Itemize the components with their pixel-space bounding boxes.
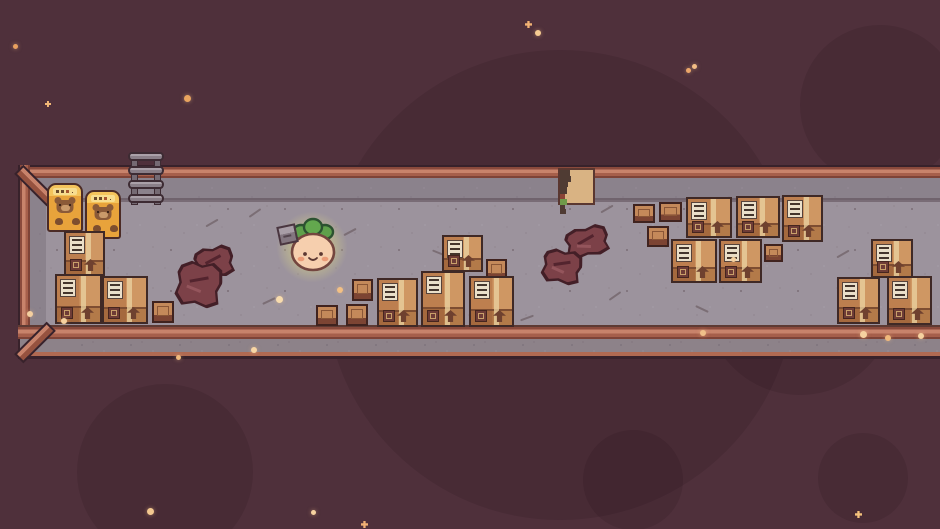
cardboard-box[interactable] [442, 235, 483, 272]
supply-crate[interactable] [316, 305, 338, 326]
bottom-wall-band [20, 339, 940, 352]
shipping-label [741, 201, 757, 219]
bear-eyes-icon [97, 211, 99, 213]
sparkle [700, 330, 706, 336]
shipping-label [892, 281, 908, 299]
cardboard-box[interactable] [719, 239, 762, 283]
shadow-blob [818, 433, 908, 523]
bottom-wall-edge [18, 352, 940, 359]
sparkle [61, 318, 67, 324]
shipping-label [676, 244, 692, 262]
vending-machine-label [91, 195, 115, 202]
ladder[interactable] [128, 152, 164, 208]
shipping-label [876, 244, 892, 262]
vending-machine-label [53, 188, 77, 195]
ladder-rung [128, 152, 164, 161]
sparkle [13, 44, 18, 49]
cardboard-box[interactable] [887, 276, 932, 325]
sparkle [918, 333, 924, 339]
shipping-label [842, 282, 858, 300]
wall-sign[interactable] [558, 168, 595, 205]
sparkle [176, 355, 181, 360]
crushed-box-scuff [576, 245, 590, 248]
sign-glyph [560, 209, 566, 214]
turnip-character-sprite [277, 212, 349, 284]
shipping-label [60, 279, 76, 297]
fragile-stamp-icon [108, 307, 120, 319]
fragile-stamp-icon [70, 259, 82, 271]
fragile-stamp-icon [692, 221, 704, 233]
shadow-blob [800, 25, 940, 185]
fragile-stamp-icon [677, 266, 689, 278]
sign-glyph [560, 187, 567, 194]
sparkle [860, 331, 867, 338]
bear-eyes-icon [59, 204, 61, 206]
shipping-label [474, 281, 490, 299]
supply-crate[interactable] [764, 244, 783, 262]
cardboard-box[interactable] [102, 276, 148, 324]
cardboard-box[interactable] [55, 274, 102, 324]
crushed-box[interactable] [173, 258, 225, 310]
cardboard-box[interactable] [686, 197, 732, 238]
shipping-label [382, 283, 398, 301]
cardboard-box[interactable] [64, 231, 105, 276]
cardboard-box[interactable] [671, 239, 717, 283]
supply-crate[interactable] [346, 304, 368, 326]
supply-crate[interactable] [352, 279, 373, 301]
sparkle [337, 287, 343, 293]
sparkle [885, 335, 891, 341]
fragile-stamp-icon [788, 225, 800, 237]
sparkle [27, 311, 33, 317]
cardboard-box[interactable] [837, 277, 880, 324]
fragile-stamp-icon [877, 261, 889, 273]
supply-crate[interactable] [152, 301, 174, 323]
bear-face-icon [95, 207, 112, 220]
sparkle [692, 64, 697, 69]
cardboard-box[interactable] [377, 278, 418, 327]
fragile-stamp-icon [448, 255, 460, 267]
bear-paws-icon [55, 218, 63, 225]
sparkle [276, 296, 283, 303]
player-character[interactable] [277, 212, 349, 284]
fragile-stamp-icon [475, 310, 487, 322]
cardboard-box[interactable] [871, 239, 913, 278]
game-viewport[interactable] [0, 0, 940, 529]
carried-parcel [276, 223, 299, 246]
fragile-stamp-icon [742, 221, 754, 233]
crushed-box-fill [176, 261, 221, 306]
sparkle [525, 21, 532, 28]
supply-crate[interactable] [659, 202, 682, 222]
shipping-label [107, 281, 123, 299]
fragile-stamp-icon [427, 310, 439, 322]
sparkle [731, 257, 736, 262]
ladder-rung [128, 194, 164, 203]
sparkle [147, 508, 154, 515]
vending-machine[interactable] [47, 183, 83, 232]
crushed-box[interactable] [539, 246, 584, 287]
fragile-stamp-icon [843, 307, 855, 319]
supply-crate[interactable] [647, 226, 669, 247]
sparkle [311, 510, 316, 515]
bottom-wall-trim [18, 325, 940, 339]
fragile-stamp-icon [725, 266, 737, 278]
ladder-rung [128, 180, 164, 189]
ladder-rung [128, 166, 164, 175]
cardboard-box[interactable] [469, 276, 514, 327]
shipping-label [69, 236, 85, 254]
sparkle [45, 101, 51, 107]
cardboard-box[interactable] [782, 195, 823, 242]
supply-crate[interactable] [633, 204, 655, 223]
box-tape-stripe [81, 276, 86, 322]
fragile-stamp-icon [383, 310, 395, 322]
shadow-blob [77, 384, 253, 529]
sparkle [686, 68, 691, 73]
sparkle [251, 347, 257, 353]
cardboard-box[interactable] [421, 271, 465, 327]
sparkle [361, 521, 368, 528]
shipping-label [691, 202, 707, 220]
shipping-label [426, 276, 442, 294]
fragile-stamp-icon [893, 308, 905, 320]
bear-face-icon [57, 200, 74, 213]
sparkle [535, 30, 541, 36]
shadow-blob [583, 430, 683, 529]
shipping-label [787, 200, 803, 218]
sparkle [184, 95, 191, 102]
cardboard-box[interactable] [736, 196, 780, 238]
